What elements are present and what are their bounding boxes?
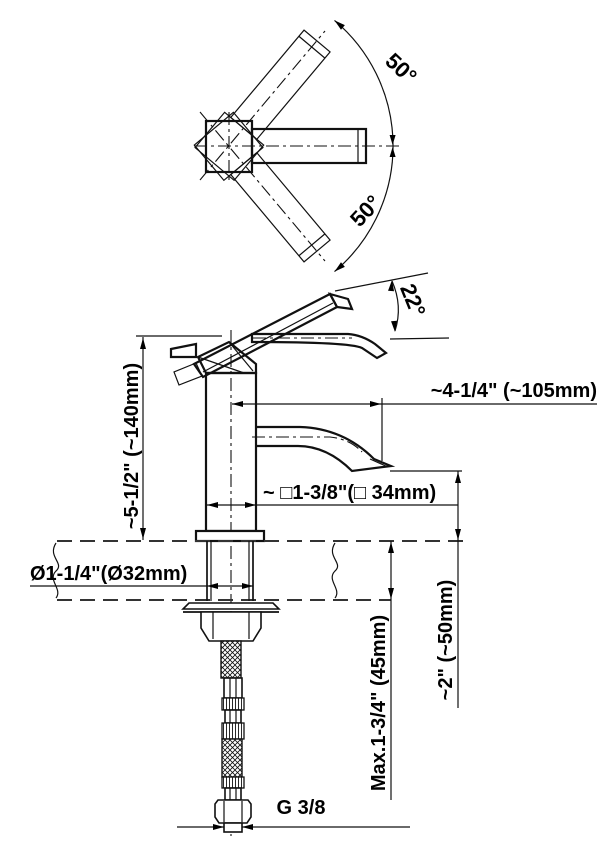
hole-diameter-label: Ø1-1/4"(Ø32mm) [30,563,187,585]
dim-deck-thickness: Max.1-3/4" (45mm) [368,541,394,800]
angle-down-label: 50° [345,190,386,231]
thread-label: G 3/8 [277,797,326,819]
faucet-dimension-drawing: 50° 50° [0,0,609,848]
base-flange [196,531,264,541]
washer [183,603,279,612]
knurled-ring-2 [222,723,244,739]
angle-up-label: 50° [380,48,421,89]
knurled-ring [222,698,244,710]
dim-lever-angle: 22° [335,273,449,339]
thread-tail [224,823,242,832]
spout-clearance-label: ~2" (~50mm) [435,580,457,701]
deck-thickness-label: Max.1-3/4" (45mm) [368,615,390,791]
body-height-label: ~5-1/2" (~140mm) [121,363,143,529]
handle-raised [174,294,352,385]
threaded-shank [207,541,253,601]
connector-hex-nut [215,800,251,823]
lever-angle-label: 22° [395,280,431,320]
top-view-handle-swing: 50° 50° [194,18,422,274]
supply-hose [215,641,251,832]
dim-body-square: ~ □1-3/8"(□ 34mm) [207,482,458,508]
hose-fitting-upper [224,678,242,698]
braided-hose-upper [221,641,241,678]
hose-collar [225,710,241,723]
knurled-ring-3 [222,777,244,788]
locknut [201,612,261,641]
dim-thread: G 3/8 [177,797,410,830]
drawing-canvas: 50° 50° [0,0,609,848]
spout-reach-label: ~4-1/4" (~105mm) [431,380,597,402]
hose-collar-2 [225,788,241,800]
body-square-label: ~ □1-3/8"(□ 34mm) [263,482,436,504]
braided-hose-lower [222,739,242,777]
dimension-annotations: 22° ~4-1/4" (~105mm) ~5-1/2" (~140mm) ~ … [30,273,597,830]
dim-spout-clearance: ~2" (~50mm) [390,471,462,708]
dim-spout-reach: ~4-1/4" (~105mm) [232,380,597,461]
spout [252,427,391,471]
dim-hole-diameter: Ø1-1/4"(Ø32mm) [30,563,253,589]
